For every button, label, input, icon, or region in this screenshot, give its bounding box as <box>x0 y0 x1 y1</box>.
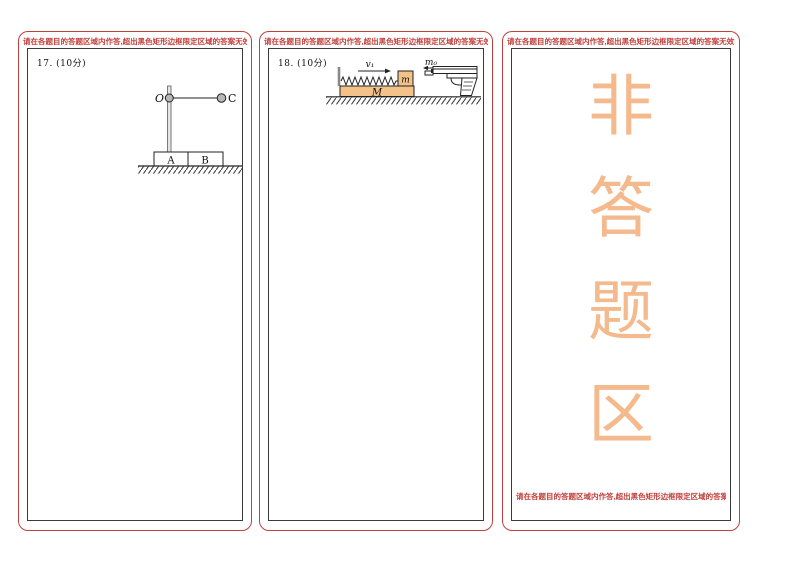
big-char-qu: 区 <box>512 379 730 451</box>
ground-hatching <box>138 167 242 174</box>
spring <box>341 77 398 85</box>
answer-sheet: 请在各题目的答题区域内作答,超出黑色矩形边框限定区域的答案无效! 17. (10… <box>0 0 794 562</box>
non-answer-box: 非 答 题 区 请在各题目的答题区域内作答,超出黑色矩形边框限定区域的答案无效! <box>511 48 731 521</box>
ground-hatching <box>326 97 481 104</box>
big-char-ti: 题 <box>512 276 730 348</box>
question-17-label: 17. (10分) <box>37 56 86 69</box>
panel-question-18: 请在各题目的答题区域内作答,超出黑色矩形边框限定区域的答案无效! 18. (10… <box>259 31 493 531</box>
warning-text-top: 请在各题目的答题区域内作答,超出黑色矩形边框限定区域的答案无效! <box>507 36 735 47</box>
velocity-arrowhead <box>385 69 391 74</box>
velocity-label: v₁ <box>366 60 375 70</box>
block-b-label: B <box>201 156 208 167</box>
pistol-icon <box>431 67 477 96</box>
big-char-fei: 非 <box>512 71 730 143</box>
warning-text-top: 请在各题目的答题区域内作答,超出黑色矩形边框限定区域的答案无效! <box>264 36 488 47</box>
diagram-rod-on-blocks: O C A B <box>131 79 244 177</box>
diagram-spring-block-gun: M m v₁ m₀ <box>321 56 485 106</box>
small-block-label: m <box>401 76 410 86</box>
block-a-label: A <box>166 156 175 167</box>
ball-c-circle <box>217 94 226 103</box>
answer-box-18: 18. (10分) M m v₁ <box>268 48 484 521</box>
panel-question-17: 请在各题目的答题区域内作答,超出黑色矩形边框限定区域的答案无效! 17. (10… <box>18 31 252 531</box>
pivot-o-label: O <box>155 92 164 105</box>
question-18-label: 18. (10分) <box>278 56 327 69</box>
pivot-o-circle <box>165 94 173 102</box>
warning-text-bottom: 请在各题目的答题区域内作答,超出黑色矩形边框限定区域的答案无效! <box>516 491 726 502</box>
answer-box-17: 17. (10分) O C A <box>27 48 243 521</box>
panel-non-answer-zone: 请在各题目的答题区域内作答,超出黑色矩形边框限定区域的答案无效! 非 答 题 区… <box>502 31 740 531</box>
ball-c-label: C <box>228 92 236 105</box>
big-char-da: 答 <box>512 173 730 245</box>
warning-text-top: 请在各题目的答题区域内作答,超出黑色矩形边框限定区域的答案无效! <box>23 36 247 47</box>
